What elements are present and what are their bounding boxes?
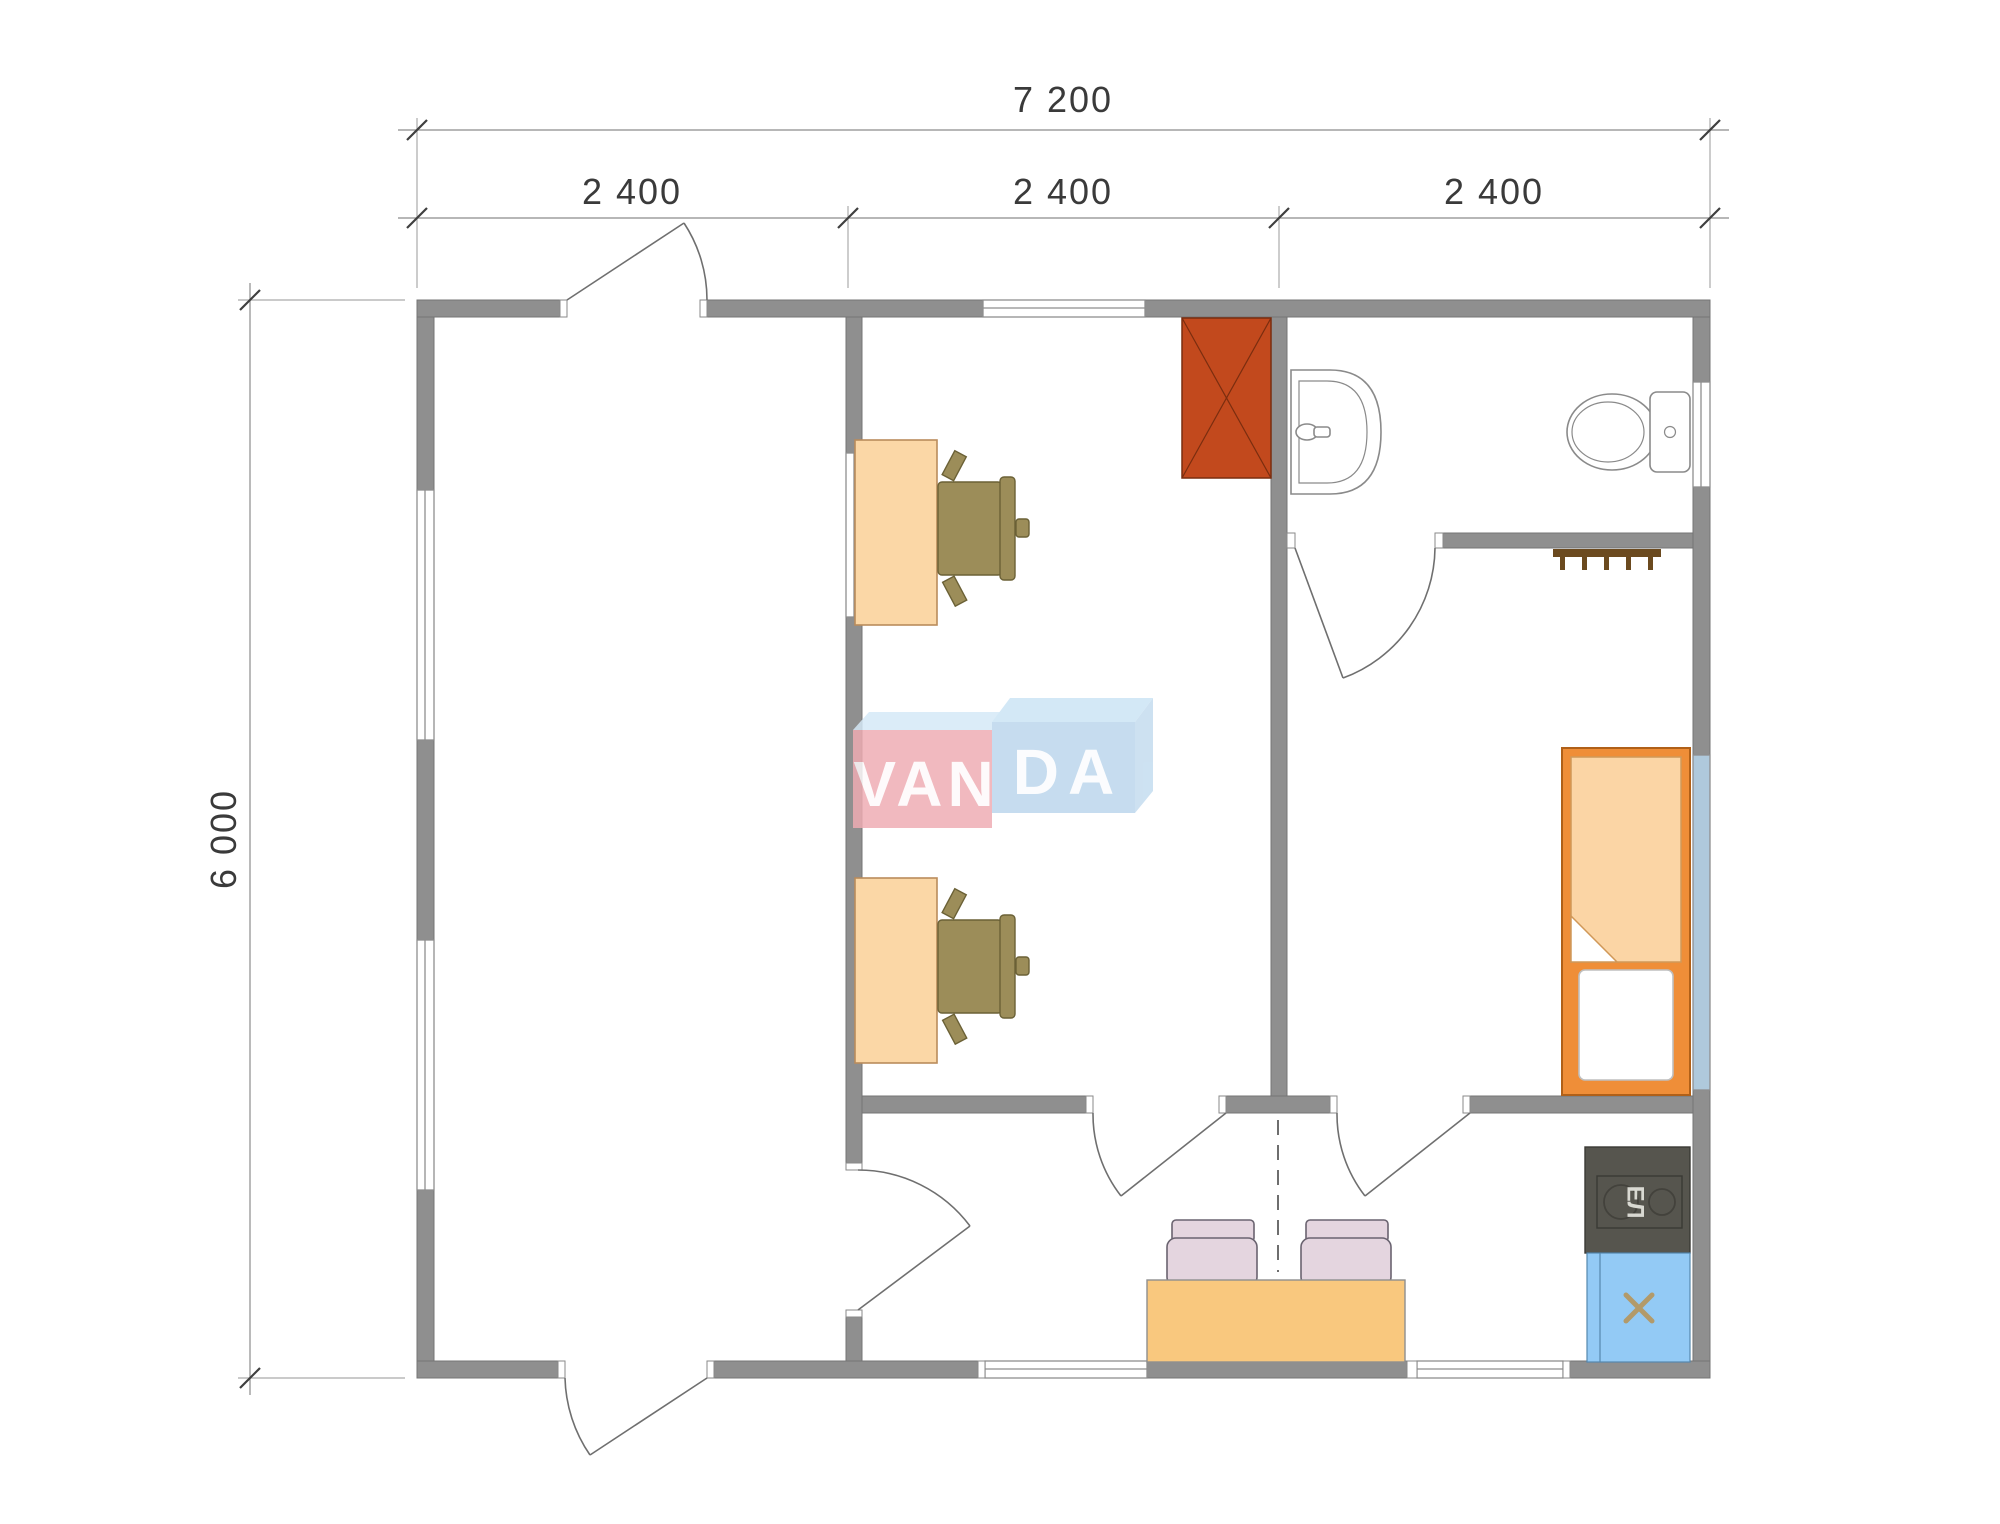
coat-rack [1553,549,1661,570]
wall-top-1 [417,300,560,317]
wall-hall-3 [1470,1096,1693,1113]
watermark-top-left-face [853,712,1009,730]
watermark-text-van: VAN [853,748,998,820]
wall-left-1 [417,317,434,490]
bed-blanket [1571,757,1681,962]
bed [1562,748,1690,1095]
wall-interior-a-3 [846,1317,862,1361]
door-livingroom-hall [858,1170,970,1310]
wall-bottom-4 [1570,1361,1710,1378]
wall-interior-b [1271,317,1287,1096]
door-entrance-bottom [565,1378,707,1455]
door-office-hall [1093,1113,1226,1196]
stove: ЕЛ [1585,1147,1690,1253]
wall-right-2 [1693,487,1710,755]
door-jambs [558,300,1570,1378]
office-furniture [855,318,1271,1063]
wall-hall-1 [862,1096,1086,1113]
wall-left-2 [417,740,434,940]
desk-2 [855,878,937,1063]
door-bathroom [1295,548,1435,678]
wall-interior-a-1 [846,317,862,453]
windows [417,300,1710,1378]
dining-table [1147,1280,1405,1362]
floor-plan-canvas: 7 200 2 400 2 400 2 400 6 000 [0,0,2000,1524]
dimension-total-height: 6 000 [203,789,244,889]
stove-label: ЕЛ [1622,1186,1649,1219]
dining-chair-2 [1301,1220,1391,1286]
door-bedroom-hall [1337,1113,1470,1196]
wall-right-3 [1693,1090,1710,1378]
kitchen-and-hall: ЕЛ [1147,1147,1690,1362]
bed-pillow [1579,970,1673,1080]
door-entrance-top [567,223,707,300]
dimension-total-width: 7 200 [1013,79,1113,120]
office-chair-1 [938,451,1029,606]
bathroom-fixtures [1291,370,1690,494]
dining-chair-1 [1167,1220,1257,1286]
watermark-top-right-face [992,698,1153,722]
dimension-bay-2: 2 400 [1013,171,1113,212]
wall-right-1 [1693,317,1710,382]
toilet [1567,392,1690,472]
dimension-bay-1: 2 400 [582,171,682,212]
washbasin [1291,370,1381,494]
walls [417,300,1710,1378]
office-chair-2 [938,889,1029,1044]
vanda-watermark: VAN DA [853,698,1153,828]
window-right-bedroom [1693,755,1710,1090]
wall-bottom-2 [714,1361,985,1378]
wall-bathroom-bottom [1443,533,1693,548]
dimension-bay-3: 2 400 [1444,171,1544,212]
wall-top-2 [707,300,983,317]
watermark-text-da: DA [1013,736,1123,808]
desk-1 [855,440,937,625]
wall-bottom-1 [417,1361,558,1378]
wall-bottom-3 [1147,1361,1407,1378]
wall-left-3 [417,1190,434,1378]
wall-top-3 [1145,300,1710,317]
kitchen-sink-unit [1587,1253,1690,1362]
floor-plan-drawing: 7 200 2 400 2 400 2 400 6 000 [0,0,2000,1524]
bedroom-furniture [1553,549,1690,1095]
wall-hall-2 [1226,1096,1330,1113]
wardrobe [1182,318,1271,478]
